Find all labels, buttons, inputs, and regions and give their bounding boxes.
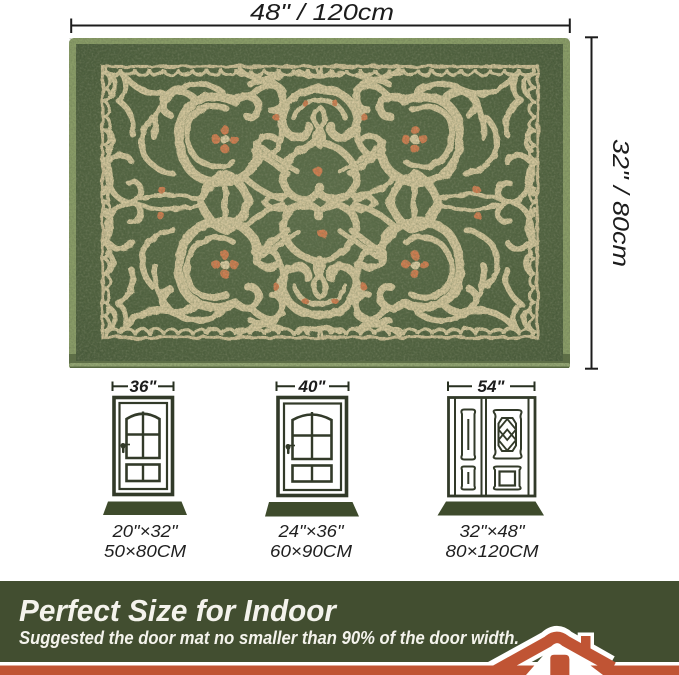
svg-text:40": 40" [298,377,327,396]
svg-text:48" / 120cm: 48" / 120cm [250,0,394,25]
svg-text:Perfect Size for Indoor: Perfect Size for Indoor [19,593,338,628]
svg-text:50×80CM: 50×80CM [104,541,186,561]
svg-text:32"×48": 32"×48" [460,521,526,541]
svg-text:36": 36" [130,377,158,396]
svg-text:80×120CM: 80×120CM [446,541,539,561]
svg-text:20"×32": 20"×32" [111,521,178,541]
svg-text:Suggested the door mat no smal: Suggested the door mat no smaller than 9… [19,628,519,648]
svg-text:60×90CM: 60×90CM [270,541,352,561]
svg-text:54": 54" [478,377,506,396]
svg-text:32" / 80cm: 32" / 80cm [608,139,634,267]
svg-text:24"×36": 24"×36" [277,521,344,541]
